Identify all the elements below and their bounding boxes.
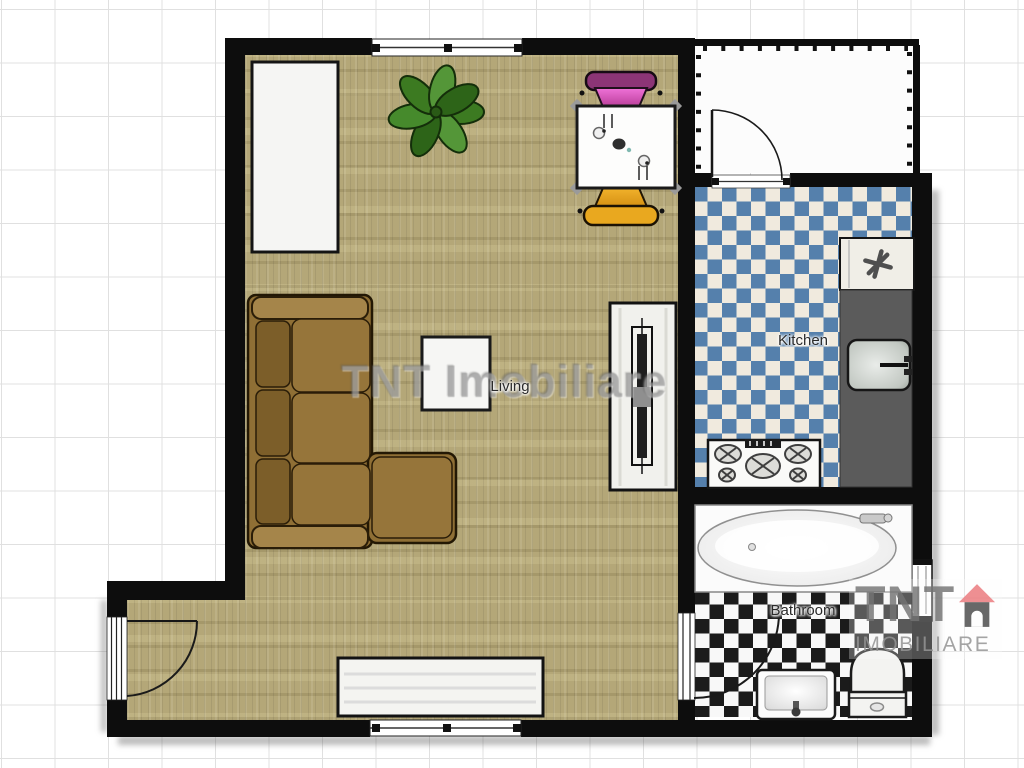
house-icon [958,581,996,631]
wall-bottom-left [107,720,370,737]
toilet [849,649,906,717]
wardrobe [252,62,338,252]
wall-entry-bottom-right [790,173,932,187]
wall-entry-top-thin [695,39,919,46]
dining-set [570,72,682,225]
wall-right-upper [912,173,932,560]
entry-glazing-ticks [699,49,910,171]
plant-icon [387,63,484,161]
wall-lowerleft-upper [107,581,127,617]
wall-top-left [225,38,372,55]
living-entrance-door [107,617,197,700]
wall-top-right [522,38,695,55]
bathroom-label: Bathroom [743,602,863,619]
logo-brand-text: TNT [855,581,955,627]
living-room-label: Living [450,378,570,395]
orange-chair [578,188,665,225]
logo-subtitle-text: IMOBILIARE [855,633,996,657]
sofa-l-shape [248,295,456,548]
wall-kitchen-bath [678,487,932,505]
kitchen-label: Kitchen [743,332,863,349]
floor-plan-canvas: Living Kitchen Bathroom TNT Imobiliare T… [0,0,1024,768]
wall-divider-upper [678,38,695,613]
dining-table [577,106,675,188]
bath-sink [757,670,835,719]
wall-step [107,581,245,600]
entry-door [712,110,790,188]
pink-chair [580,72,663,107]
wall-divider-lower [678,700,695,737]
fridge [840,238,914,290]
window-bottom [370,720,521,736]
wall-entry-right-thin [913,45,920,173]
wall-entry-bottom-left [678,173,712,187]
stove [708,439,820,488]
sideboard [338,658,543,716]
agency-logo: TNT IMOBILIARE [849,579,1002,659]
window-top [372,39,522,56]
wall-bottom-right [521,720,932,737]
wall-left [225,38,245,596]
